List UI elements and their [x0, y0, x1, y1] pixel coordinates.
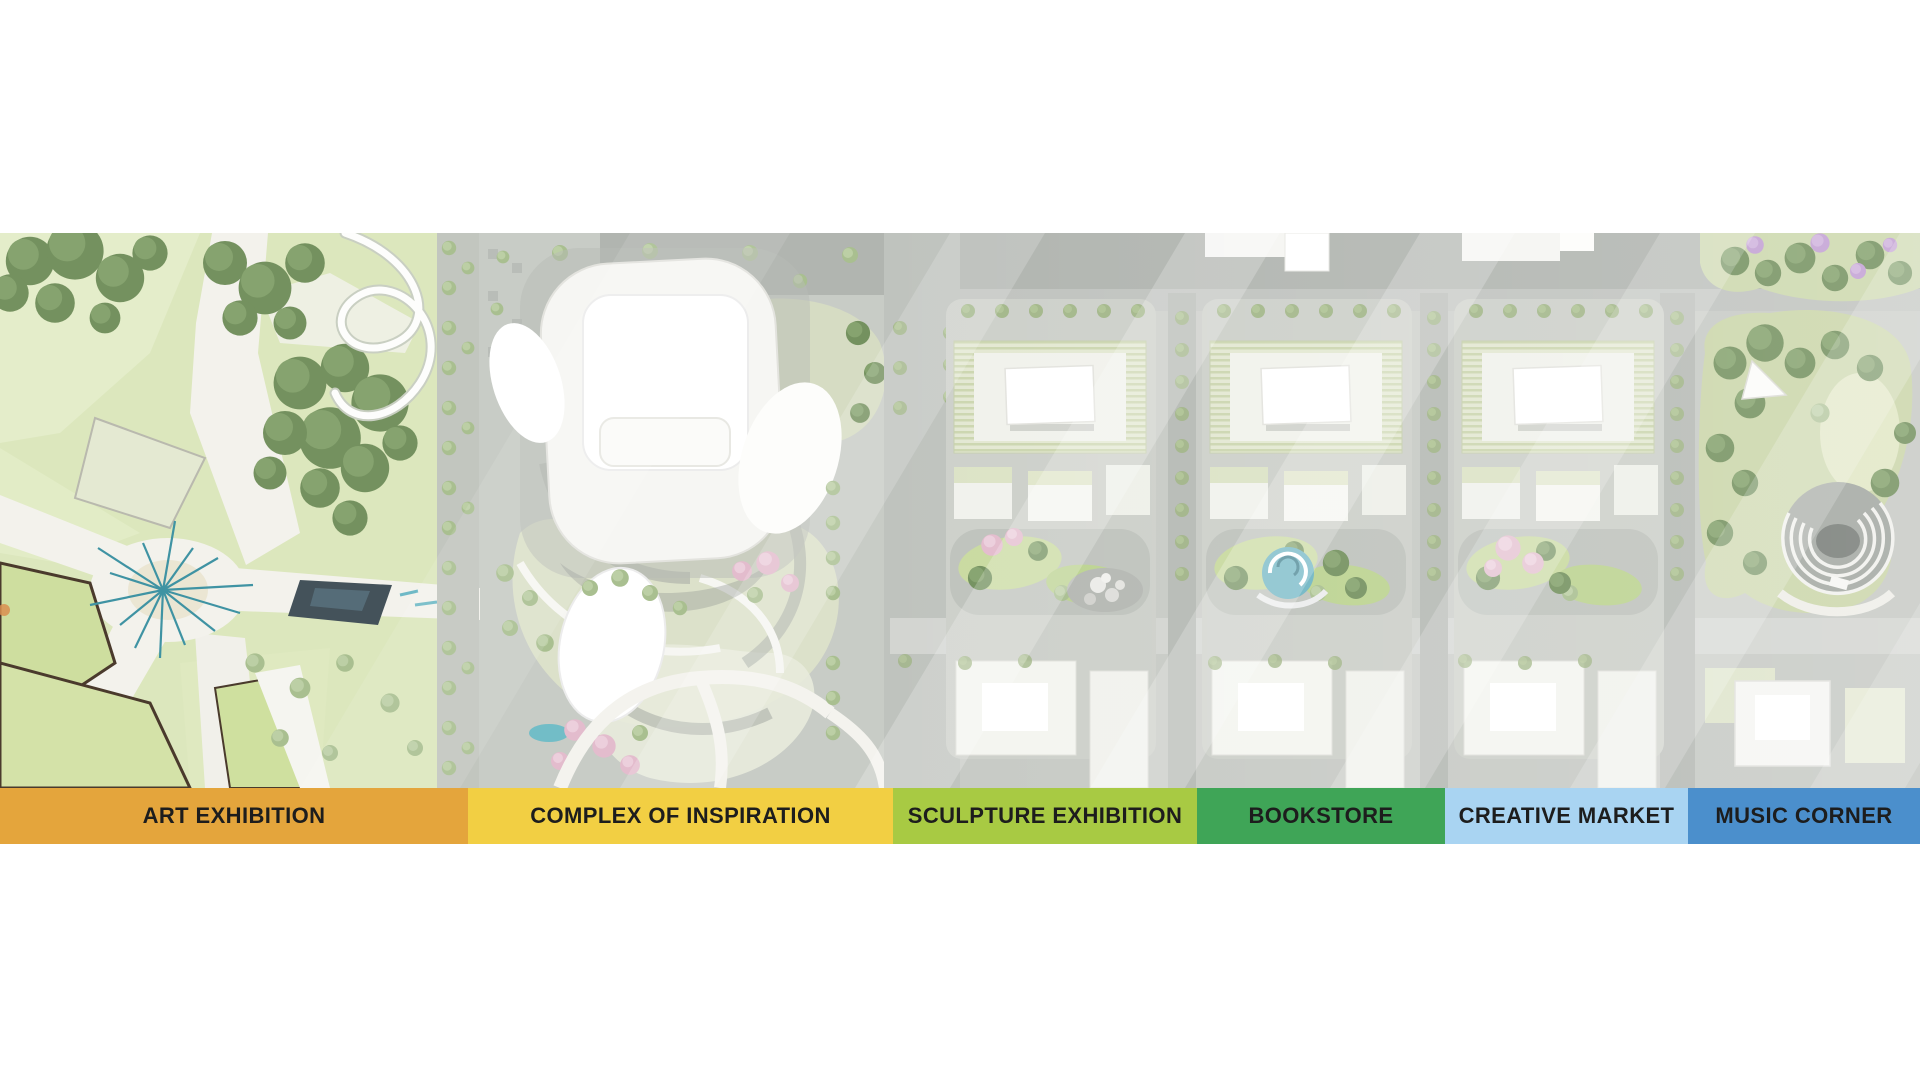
legend-label-bookstore: BOOKSTORE: [1249, 803, 1394, 829]
masterplan-page: ART EXHIBITION COMPLEX OF INSPIRATION SC…: [0, 0, 1920, 1080]
masterplan-rendering: [0, 233, 1920, 788]
legend-label-sculpture-exhibition: SCULPTURE EXHIBITION: [908, 803, 1182, 829]
legend-item-art-exhibition: ART EXHIBITION: [0, 788, 468, 844]
legend-label-music-corner: MUSIC CORNER: [1715, 803, 1892, 829]
legend-bar: ART EXHIBITION COMPLEX OF INSPIRATION SC…: [0, 788, 1920, 844]
legend-item-complex-of-inspiration: COMPLEX OF INSPIRATION: [468, 788, 893, 844]
legend-item-music-corner: MUSIC CORNER: [1688, 788, 1920, 844]
legend-label-creative-market: CREATIVE MARKET: [1459, 803, 1675, 829]
desaturation-wash: [0, 233, 1920, 788]
legend-item-bookstore: BOOKSTORE: [1197, 788, 1445, 844]
legend-item-sculpture-exhibition: SCULPTURE EXHIBITION: [893, 788, 1197, 844]
legend-label-complex-of-inspiration: COMPLEX OF INSPIRATION: [530, 803, 831, 829]
legend-item-creative-market: CREATIVE MARKET: [1445, 788, 1688, 844]
legend-label-art-exhibition: ART EXHIBITION: [143, 803, 326, 829]
